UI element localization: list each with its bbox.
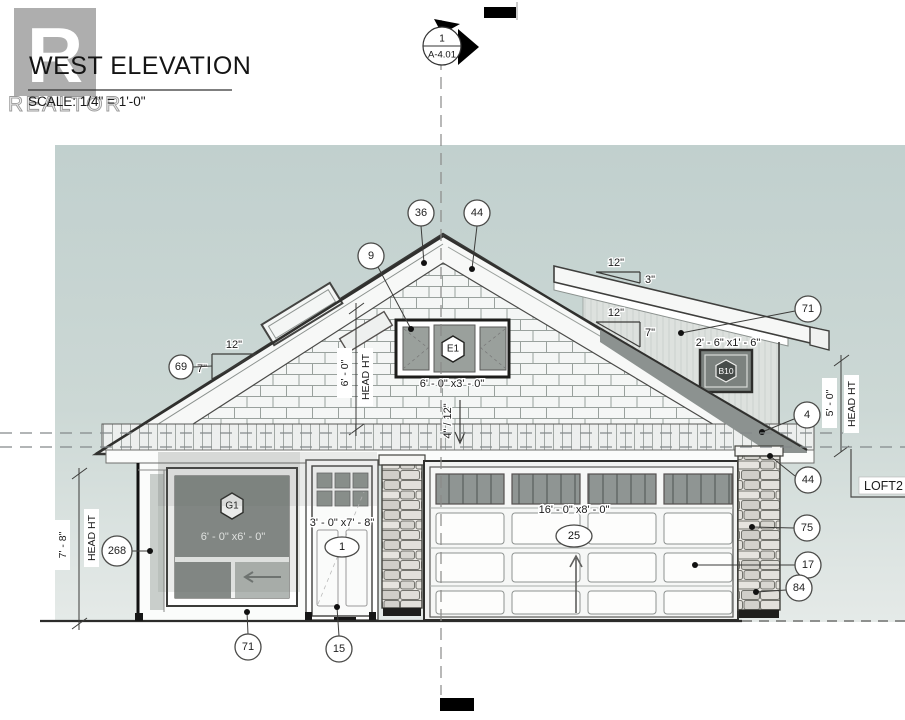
svg-text:75: 75 bbox=[801, 522, 813, 534]
svg-text:44: 44 bbox=[471, 207, 483, 219]
svg-text:4: 4 bbox=[804, 409, 810, 421]
dim-b10: 2' - 6" x1' - 6" bbox=[696, 337, 761, 349]
garage-door: 16' - 0" x8' - 0" 25 bbox=[424, 461, 738, 620]
callout-9: 9 bbox=[358, 243, 384, 269]
svg-text:9: 9 bbox=[368, 250, 374, 262]
dim-head-left-label: HEAD HT bbox=[86, 514, 98, 561]
elevation-sheet: B10 2' - 6" x1' - 6" E1 6' - 0" x3' - 0" bbox=[0, 0, 905, 720]
slope-right-rise: 7" bbox=[645, 327, 655, 339]
svg-text:71: 71 bbox=[242, 641, 254, 653]
callout-71-bottom: 71 bbox=[235, 634, 261, 660]
svg-text:69: 69 bbox=[175, 361, 187, 373]
pillar-cap bbox=[379, 455, 425, 465]
view-scale: SCALE: 1/4" = 1'-0" bbox=[28, 94, 146, 109]
slope-right-run: 12" bbox=[608, 307, 624, 319]
dim-head-right-value: 5' - 0" bbox=[824, 389, 836, 416]
dim-garage: 16' - 0" x8' - 0" bbox=[539, 504, 610, 516]
callout-69: 69 bbox=[169, 355, 193, 379]
watermark-tile bbox=[158, 452, 300, 592]
callout-15: 15 bbox=[326, 636, 352, 662]
section-marker: 1 A-4.01 bbox=[423, 19, 479, 65]
dim-e1: 6' - 0" x3' - 0" bbox=[420, 378, 485, 390]
bottom-bar-mark bbox=[440, 698, 474, 711]
soffit-band bbox=[102, 424, 814, 450]
svg-text:15: 15 bbox=[333, 643, 345, 655]
tag-e1: E1 bbox=[447, 344, 460, 355]
section-sheet: A-4.01 bbox=[428, 50, 456, 61]
callout-17: 17 bbox=[795, 552, 821, 578]
slope-loft-run: 12" bbox=[608, 257, 624, 269]
elevation-drawing: B10 2' - 6" x1' - 6" E1 6' - 0" x3' - 0" bbox=[0, 0, 905, 720]
top-bar-mark bbox=[484, 7, 516, 18]
svg-text:36: 36 bbox=[415, 207, 427, 219]
dim-head-mid-value: 6' - 0" bbox=[339, 359, 351, 386]
section-number: 1 bbox=[439, 34, 445, 45]
loft-label: LOFT2 bbox=[864, 479, 903, 493]
callout-4: 4 bbox=[794, 402, 820, 428]
callout-36: 36 bbox=[408, 200, 434, 226]
tag-garage: 25 bbox=[568, 530, 580, 542]
callout-44-top: 44 bbox=[464, 200, 490, 226]
slope-left-rise: 7" bbox=[197, 363, 207, 375]
view-title: WEST ELEVATION bbox=[29, 52, 251, 80]
pillar-base bbox=[739, 610, 779, 618]
tag-b10: B10 bbox=[718, 366, 733, 376]
callout-44-right: 44 bbox=[795, 467, 821, 493]
dim-head-left-value: 7' - 8" bbox=[57, 531, 69, 558]
svg-text:268: 268 bbox=[108, 545, 126, 557]
window-b10: B10 bbox=[700, 350, 752, 392]
callout-71-right: 71 bbox=[795, 296, 821, 322]
dim-door: 3' - 0" x7' - 8" bbox=[310, 517, 375, 529]
pillar-base bbox=[383, 608, 421, 616]
svg-text:71: 71 bbox=[802, 303, 814, 315]
svg-text:17: 17 bbox=[802, 559, 814, 571]
tag-door: 1 bbox=[339, 541, 345, 553]
callout-268: 268 bbox=[102, 536, 132, 566]
svg-text:84: 84 bbox=[793, 582, 805, 594]
dim-head-right-label: HEAD HT bbox=[846, 380, 858, 427]
svg-text:44: 44 bbox=[802, 474, 814, 486]
callout-84: 84 bbox=[786, 575, 812, 601]
dim-head-mid-label: HEAD HT bbox=[360, 353, 372, 400]
callout-75: 75 bbox=[794, 515, 820, 541]
stone-pillar-left bbox=[379, 455, 425, 616]
slope-loft-rise: 3" bbox=[645, 274, 655, 286]
slope-left-run: 12" bbox=[226, 339, 242, 351]
